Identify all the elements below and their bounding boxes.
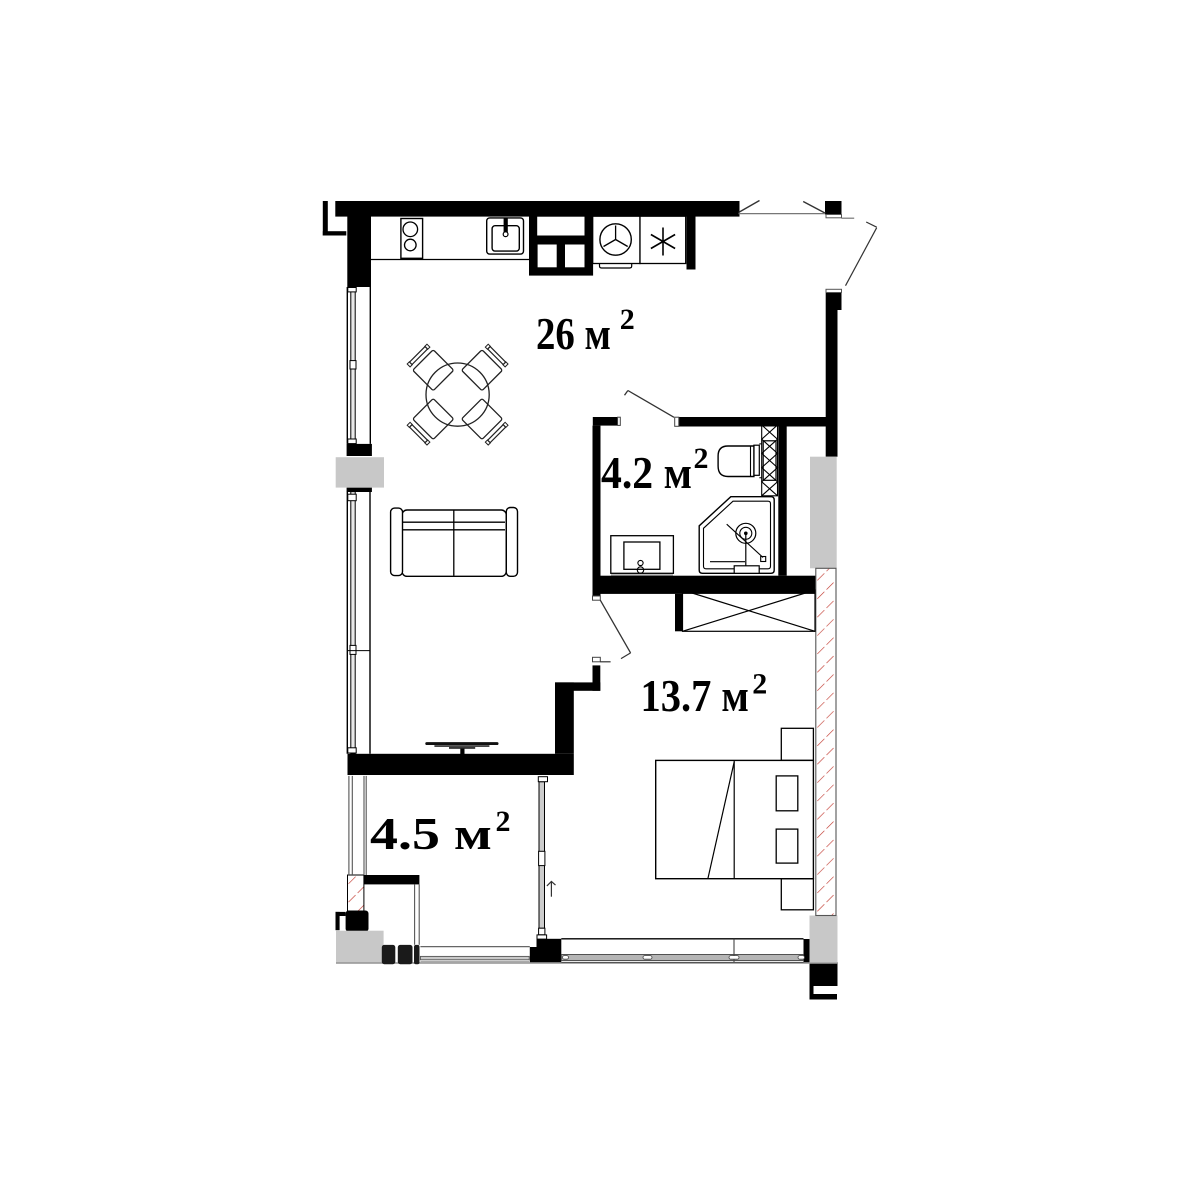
svg-text:26 м: 26 м bbox=[536, 308, 611, 359]
svg-text:2: 2 bbox=[752, 668, 767, 701]
svg-text:2: 2 bbox=[496, 805, 511, 838]
svg-text:4.2 м: 4.2 м bbox=[601, 447, 692, 498]
svg-text:2: 2 bbox=[620, 303, 635, 336]
svg-text:4.5 м: 4.5 м bbox=[370, 808, 492, 859]
svg-text:2: 2 bbox=[694, 442, 709, 475]
svg-text:13.7 м: 13.7 м bbox=[641, 670, 750, 721]
